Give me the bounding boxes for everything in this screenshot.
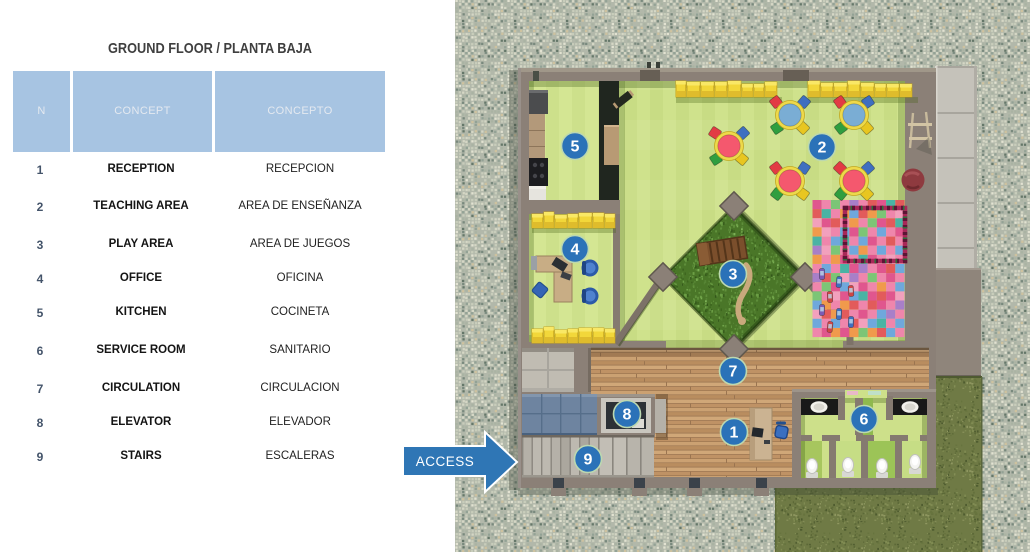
svg-text:ACCESS: ACCESS bbox=[416, 454, 475, 469]
svg-text:2: 2 bbox=[818, 140, 827, 157]
svg-text:5: 5 bbox=[571, 139, 580, 156]
svg-text:9: 9 bbox=[584, 452, 593, 469]
svg-text:1: 1 bbox=[730, 425, 739, 442]
svg-text:4: 4 bbox=[571, 242, 580, 259]
svg-text:7: 7 bbox=[729, 364, 738, 381]
svg-text:3: 3 bbox=[729, 267, 738, 284]
svg-text:6: 6 bbox=[860, 412, 869, 429]
svg-text:8: 8 bbox=[623, 407, 632, 424]
